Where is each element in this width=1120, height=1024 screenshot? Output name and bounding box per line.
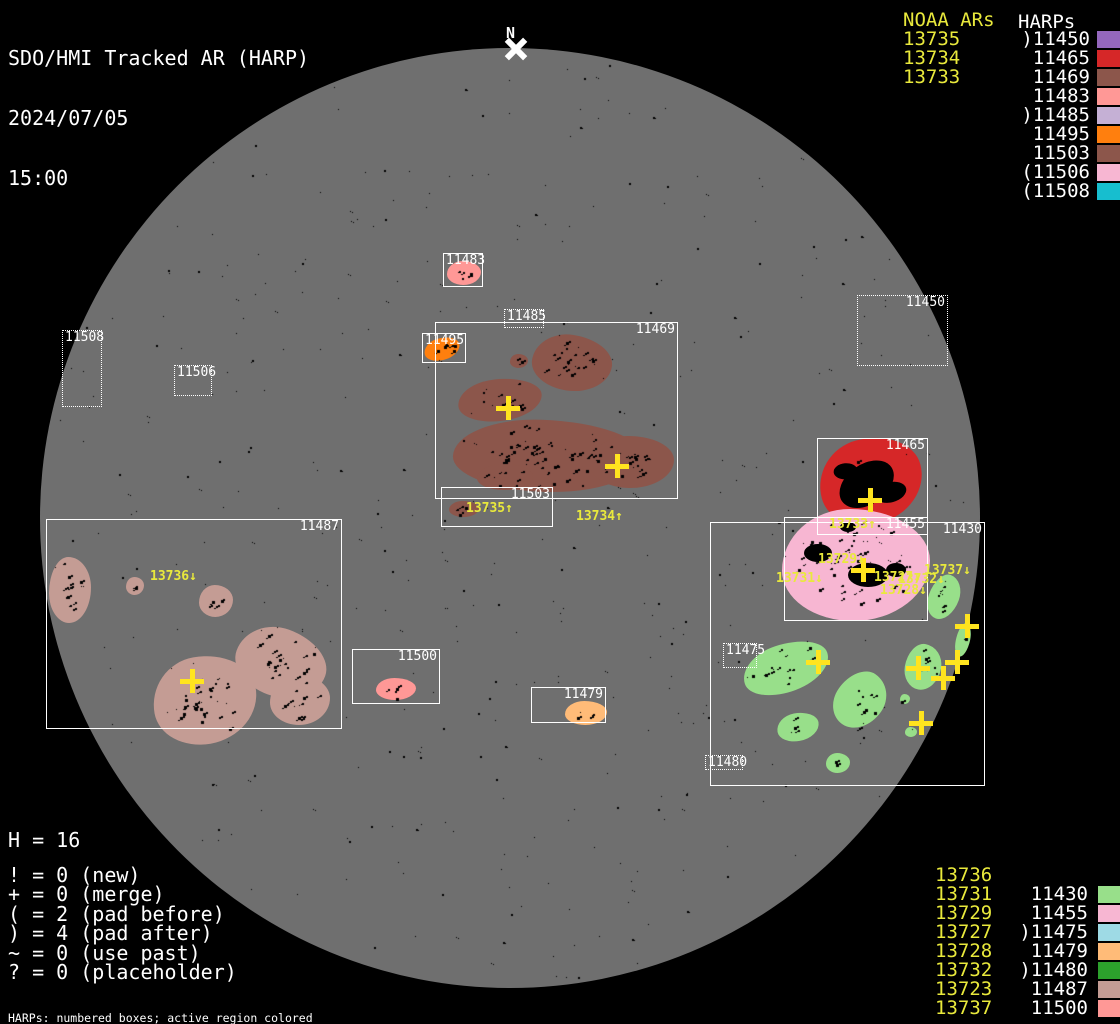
cross-bar (806, 660, 830, 665)
harp-box-label-11430: 11430 (943, 523, 982, 537)
cross-bar (496, 406, 520, 411)
harp-box-11450: 11450 (857, 295, 948, 366)
noaa-shifted-label: 13728↓ (880, 584, 927, 598)
harp-box-label-11469: 11469 (636, 323, 675, 337)
harp-box-label-11506: 11506 (177, 366, 216, 380)
harp-box-11508: 11508 (62, 330, 102, 407)
legend-harp-item: 11500 (1031, 999, 1088, 1018)
noaa-ar-cross (180, 669, 204, 693)
harp-box-11500: 11500 (352, 649, 440, 704)
legend-color-swatch (1097, 88, 1120, 105)
harp-box-11487: 11487 (46, 519, 342, 729)
legend-color-swatch (1097, 107, 1120, 124)
harp-count: H = 16 (8, 830, 80, 850)
noaa-shifted-label: 13729↓ (818, 553, 865, 567)
noaa-ar-cross (496, 396, 520, 420)
legend-color-swatch (1097, 183, 1120, 200)
cross-bar (858, 498, 882, 503)
noaa-ar-cross (955, 614, 979, 638)
legend-noaa-item: 13737 (935, 999, 992, 1018)
noaa-ar-cross (909, 711, 933, 735)
cross-bar (906, 666, 930, 671)
legend-color-swatch (1098, 1000, 1120, 1017)
stats-lines: ! = 0 (new)+ = 0 (merge)( = 2 (pad befor… (8, 866, 237, 982)
legend-harp-item: (11508 (1021, 182, 1090, 201)
legend-color-swatch (1098, 886, 1120, 903)
harp-box-label-11450: 11450 (906, 296, 945, 310)
noaa-shifted-label: 13733↑ (829, 518, 876, 532)
noaa-ar-cross (806, 650, 830, 674)
title-block: SDO/HMI Tracked AR (HARP) 2024/07/05 15:… (8, 8, 309, 228)
noaa-ar-cross (858, 488, 882, 512)
north-marker-icon (503, 37, 527, 61)
cross-bar (180, 679, 204, 684)
noaa-shifted-label: 13734↑ (576, 510, 623, 524)
stats-line: ? = 0 (placeholder) (8, 963, 237, 982)
date-label: 2024/07/05 (8, 108, 309, 128)
noaa-ar-cross (605, 454, 629, 478)
legend-noaa-item: 13733 (903, 68, 960, 87)
footnotes: HARPs: numbered boxes; active region col… (8, 990, 410, 1024)
solar-disk-harp-map: 1148311485114951146911503114501150811506… (0, 0, 1120, 1024)
harp-box-11479: 11479 (531, 687, 606, 723)
harp-box-11475: 11475 (723, 643, 757, 668)
harp-box-label-11483: 11483 (446, 254, 485, 268)
noaa-shifted-label: 13731↓ (776, 572, 823, 586)
noaa-shifted-label: 13737↓ (924, 564, 971, 578)
harp-box-label-11500: 11500 (398, 650, 437, 664)
footnote-harps: HARPs: numbered boxes; active region col… (8, 1013, 410, 1024)
legend-color-swatch (1097, 31, 1120, 48)
noaa-ar-cross (906, 656, 930, 680)
legend-color-swatch (1097, 50, 1120, 67)
noaa-ar-cross (945, 650, 969, 674)
harp-box-11483: 11483 (443, 253, 483, 287)
cross-bar (909, 721, 933, 726)
cross-bar (605, 464, 629, 469)
harp-box-label-11508: 11508 (65, 331, 104, 345)
cross-bar (931, 676, 955, 681)
harp-box-label-11475: 11475 (726, 644, 765, 658)
time-label: 15:00 (8, 168, 309, 188)
legend-color-swatch (1098, 962, 1120, 979)
cross-bar (851, 568, 875, 573)
harp-box-11480: 11480 (705, 755, 743, 770)
legend-color-swatch (1098, 905, 1120, 922)
cross-bar (945, 660, 969, 665)
legend-color-swatch (1097, 69, 1120, 86)
harp-box-label-11479: 11479 (564, 688, 603, 702)
legend-color-swatch (1097, 164, 1120, 181)
harp-box-label-11465: 11465 (886, 439, 925, 453)
harp-box-label-11503: 11503 (511, 488, 550, 502)
legend-color-swatch (1097, 126, 1120, 143)
noaa-shifted-label: 13735↑ (466, 502, 513, 516)
legend-color-swatch (1098, 981, 1120, 998)
harp-box-label-11480: 11480 (708, 756, 747, 770)
harp-box-label-11487: 11487 (300, 520, 339, 534)
cross-bar (955, 624, 979, 629)
legend-color-swatch (1098, 924, 1120, 941)
harp-box-11469: 11469 (435, 322, 678, 499)
noaa-shifted-label: 13736↓ (150, 570, 197, 584)
legend-color-swatch (1098, 943, 1120, 960)
harp-box-11506: 11506 (174, 365, 212, 396)
legend-color-swatch (1097, 145, 1120, 162)
page-title: SDO/HMI Tracked AR (HARP) (8, 48, 309, 68)
